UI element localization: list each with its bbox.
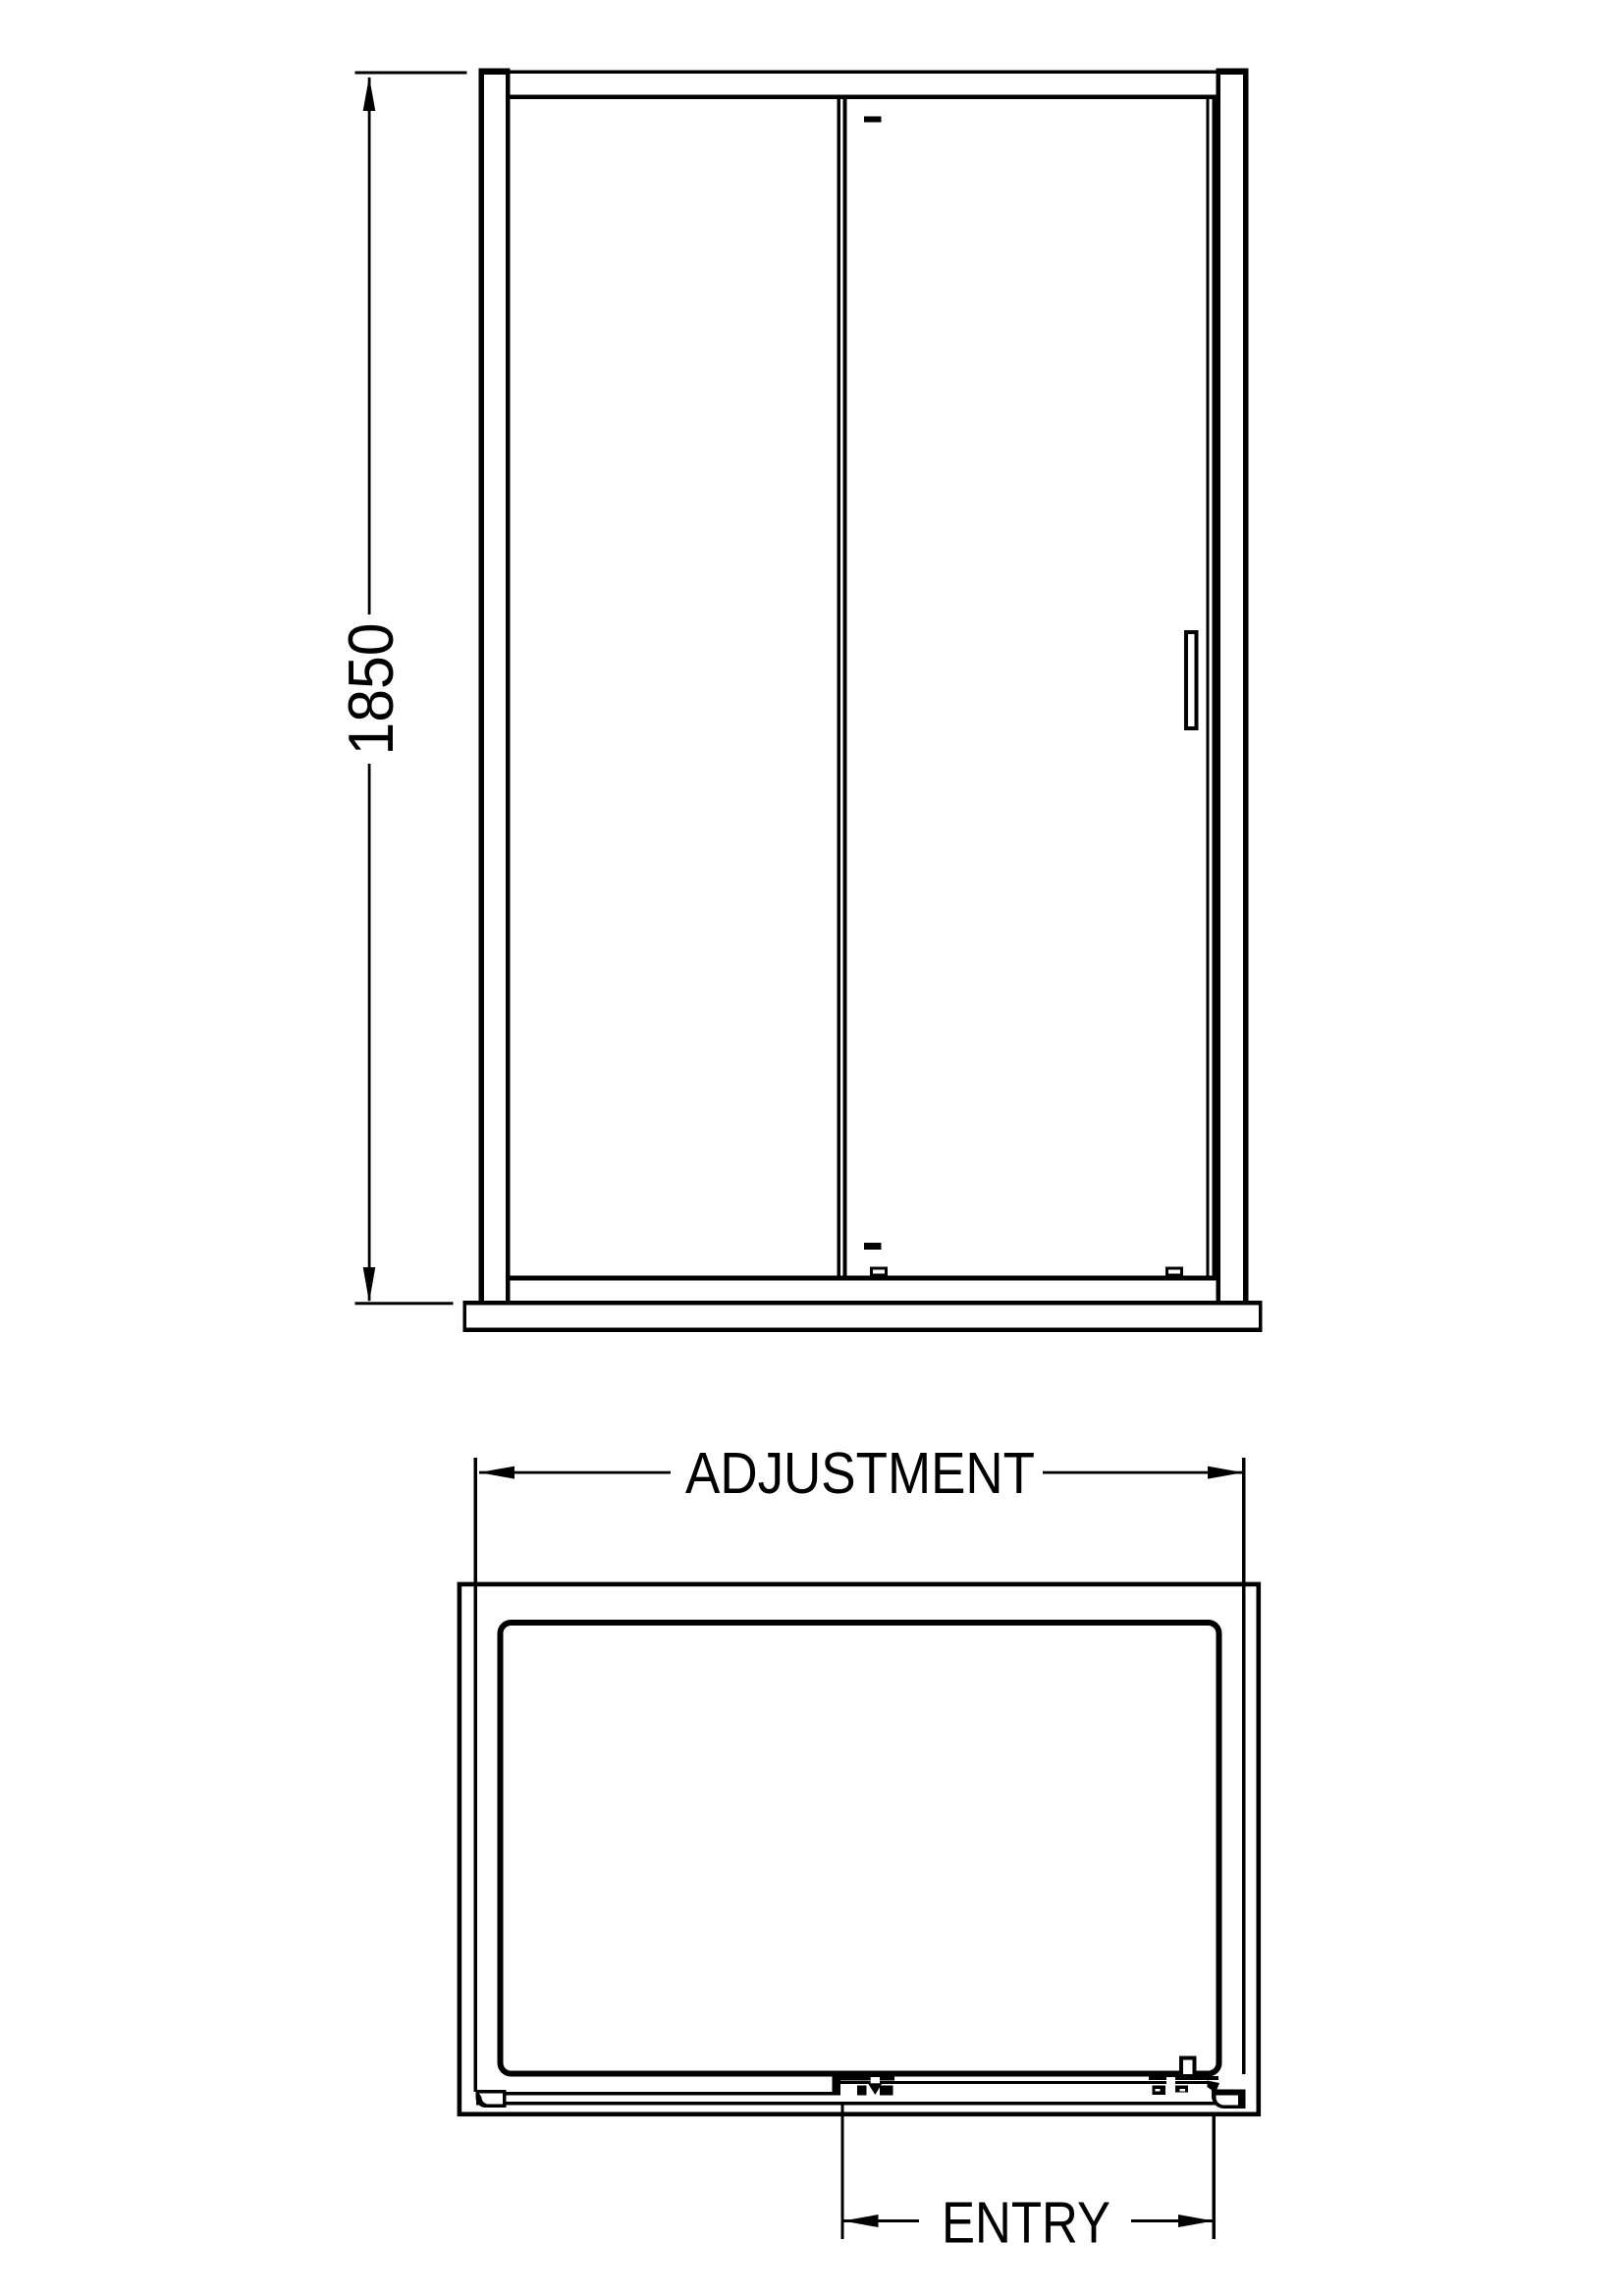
svg-text:ADJUSTMENT: ADJUSTMENT xyxy=(685,1440,1035,1506)
svg-text:ENTRY: ENTRY xyxy=(942,2190,1110,2256)
svg-text:1850: 1850 xyxy=(335,623,406,756)
